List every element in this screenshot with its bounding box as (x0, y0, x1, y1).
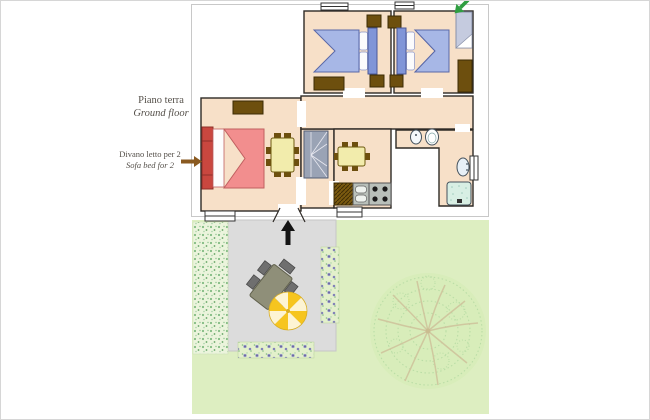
room-hallway (301, 96, 473, 129)
nightstand (370, 75, 384, 87)
door-living-vestibule (296, 177, 306, 205)
toilet (426, 129, 439, 145)
door-bedroom-1 (343, 88, 365, 98)
bidet (411, 130, 422, 144)
wardrobe (458, 60, 472, 92)
door-bedroom-2 (421, 88, 443, 98)
shower (447, 182, 471, 205)
door-living-hall (297, 101, 306, 127)
window-kitchen (337, 207, 362, 217)
nightstand (367, 15, 381, 27)
window-bathroom (470, 156, 478, 180)
nightstand (388, 16, 401, 28)
dresser (233, 101, 263, 114)
window-top-2 (395, 2, 414, 9)
flower-bed-bottom (238, 342, 314, 358)
window-living (205, 211, 235, 221)
entrance-door-opening (278, 204, 299, 213)
stove (369, 183, 391, 205)
nightstand (390, 75, 403, 87)
parasol (269, 292, 307, 330)
kitchen-counter (334, 183, 391, 205)
floorplan-drawing (1, 1, 650, 420)
dresser (314, 77, 344, 90)
flower-bed-right (321, 247, 339, 323)
dining-table (266, 133, 299, 177)
sofa-bed-pillows (213, 129, 224, 187)
hedge (193, 222, 228, 354)
counter-cabinet (334, 183, 353, 205)
window-top-1 (321, 3, 348, 10)
headboard (368, 28, 377, 74)
headboard (397, 28, 406, 74)
garden (192, 220, 489, 414)
washbasin (457, 158, 469, 176)
door-bathroom (455, 124, 470, 132)
tree (370, 273, 486, 389)
floorplan-image: Piano terra Ground floor Divano letto pe… (0, 0, 650, 420)
shower-drain (457, 199, 462, 203)
closet (456, 12, 472, 48)
staircase (304, 131, 328, 178)
